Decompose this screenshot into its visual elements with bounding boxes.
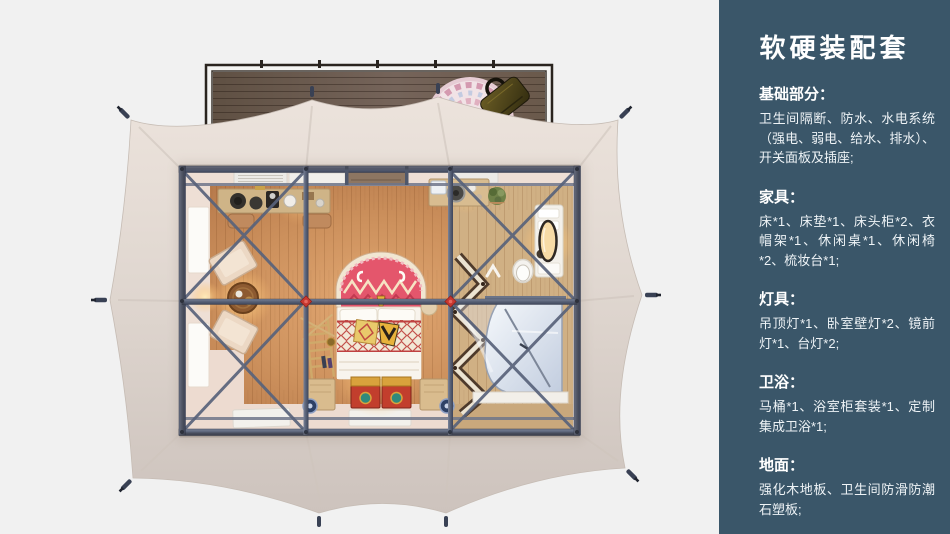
pattern-cushion: [354, 320, 379, 345]
appliance: [431, 181, 446, 194]
frame-mid-rail: [182, 299, 577, 305]
section-bathroom-body: 马桶*1、浴室柜套装*1、定制集成卫浴*1;: [759, 397, 935, 436]
vanity-counter: [535, 205, 563, 277]
section-furniture: 家具： 床*1、床垫*1、床头柜*2、衣帽架*1、休闲桌*1、休闲椅*2、梳妆台…: [759, 186, 935, 271]
section-lighting-header: 灯具：: [759, 288, 935, 312]
section-furniture-header: 家具：: [759, 186, 935, 210]
hat-rack-desk: [218, 185, 330, 213]
kettle: [316, 199, 324, 207]
section-lighting-body: 吊顶灯*1、卧室壁灯*2、镜前灯*1、台灯*2;: [759, 314, 935, 353]
section-furniture-body: 床*1、床垫*1、床头柜*2、衣帽架*1、休闲桌*1、休闲椅*2、梳妆台*1;: [759, 212, 935, 271]
section-basics-body: 卫生间隔断、防水、水电系统（强电、弱电、给水、排水）、开关面板及插座;: [759, 109, 935, 168]
potted-plant: [488, 187, 506, 205]
hat: [250, 197, 263, 210]
section-basics-header: 基础部分：: [759, 83, 935, 107]
storage-chest: [382, 377, 411, 408]
tea-table: [228, 283, 258, 313]
window: [188, 323, 209, 387]
section-flooring-header: 地面：: [759, 454, 935, 478]
storage-chest: [351, 377, 380, 408]
oval-mirror: [540, 221, 557, 261]
section-basics: 基础部分： 卫生间隔断、防水、水电系统（强电、弱电、给水、排水）、开关面板及插座…: [759, 83, 935, 168]
plate: [284, 195, 296, 207]
brass-ring: [327, 338, 335, 346]
panel-title: 软硬装配套: [734, 28, 935, 65]
spec-panel: 软硬装配套 基础部分： 卫生间隔断、防水、水电系统（强电、弱电、给水、排水）、开…: [719, 0, 950, 534]
section-bathroom: 卫浴： 马桶*1、浴室柜套装*1、定制集成卫浴*1;: [759, 371, 935, 436]
tent-topview-render: [0, 0, 719, 534]
section-flooring-body: 强化木地板、卫生间防滑防潮石塑板;: [759, 480, 935, 519]
window: [188, 207, 209, 273]
room-interior: [179, 166, 581, 436]
toilet: [513, 260, 533, 283]
section-lighting: 灯具： 吊顶灯*1、卧室壁灯*2、镜前灯*1、台灯*2;: [759, 288, 935, 353]
section-bathroom-header: 卫浴：: [759, 371, 935, 395]
render-scene: [0, 0, 719, 534]
towel: [538, 209, 559, 218]
teacup: [236, 291, 243, 298]
section-flooring: 地面： 强化木地板、卫生间防滑防潮石塑板;: [759, 454, 935, 519]
